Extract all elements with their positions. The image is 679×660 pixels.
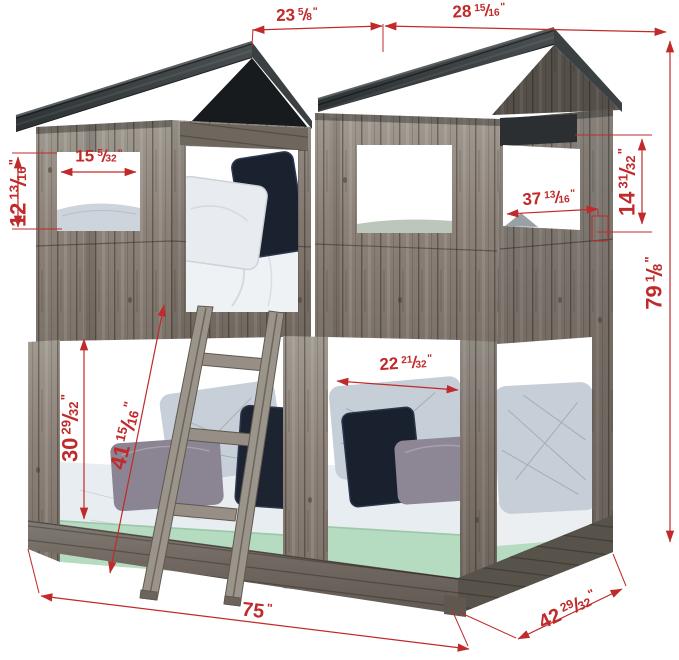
product-dimension-diagram: 235/8" 2815/16" 791/8" 155/32" 1213/16" … xyxy=(0,0,679,660)
doorway-opening xyxy=(170,146,308,312)
dimension-label-side-window-height: 1431/32" xyxy=(617,148,640,216)
dimension-label-overall-length: 75" xyxy=(241,599,273,623)
gray-blue-pillow-side xyxy=(493,381,600,514)
right-roof xyxy=(318,28,622,115)
dimension-label-side-window-wall-width: 3713/16" xyxy=(522,187,576,208)
bunk-bed-illustration xyxy=(0,0,679,660)
dimension-label-lower-opening-height: 3029/32" xyxy=(60,394,83,462)
dim-line-roof-left xyxy=(253,26,382,30)
dim-line-roof-right xyxy=(385,26,666,32)
dimension-label-roof-right-width: 2815/16" xyxy=(452,1,506,21)
front-window xyxy=(357,145,452,233)
left-roof xyxy=(16,42,312,132)
dimension-label-overall-height: 791/8" xyxy=(644,256,667,309)
under-eave-opening xyxy=(500,114,577,146)
dimension-label-left-window-height: 1213/16" xyxy=(8,159,31,227)
dimension-label-lower-opening-width: 2221/32" xyxy=(379,352,433,373)
dimension-label-roof-left-width: 235/8" xyxy=(276,6,318,25)
dimension-label-left-window-width: 155/32" xyxy=(75,147,122,164)
